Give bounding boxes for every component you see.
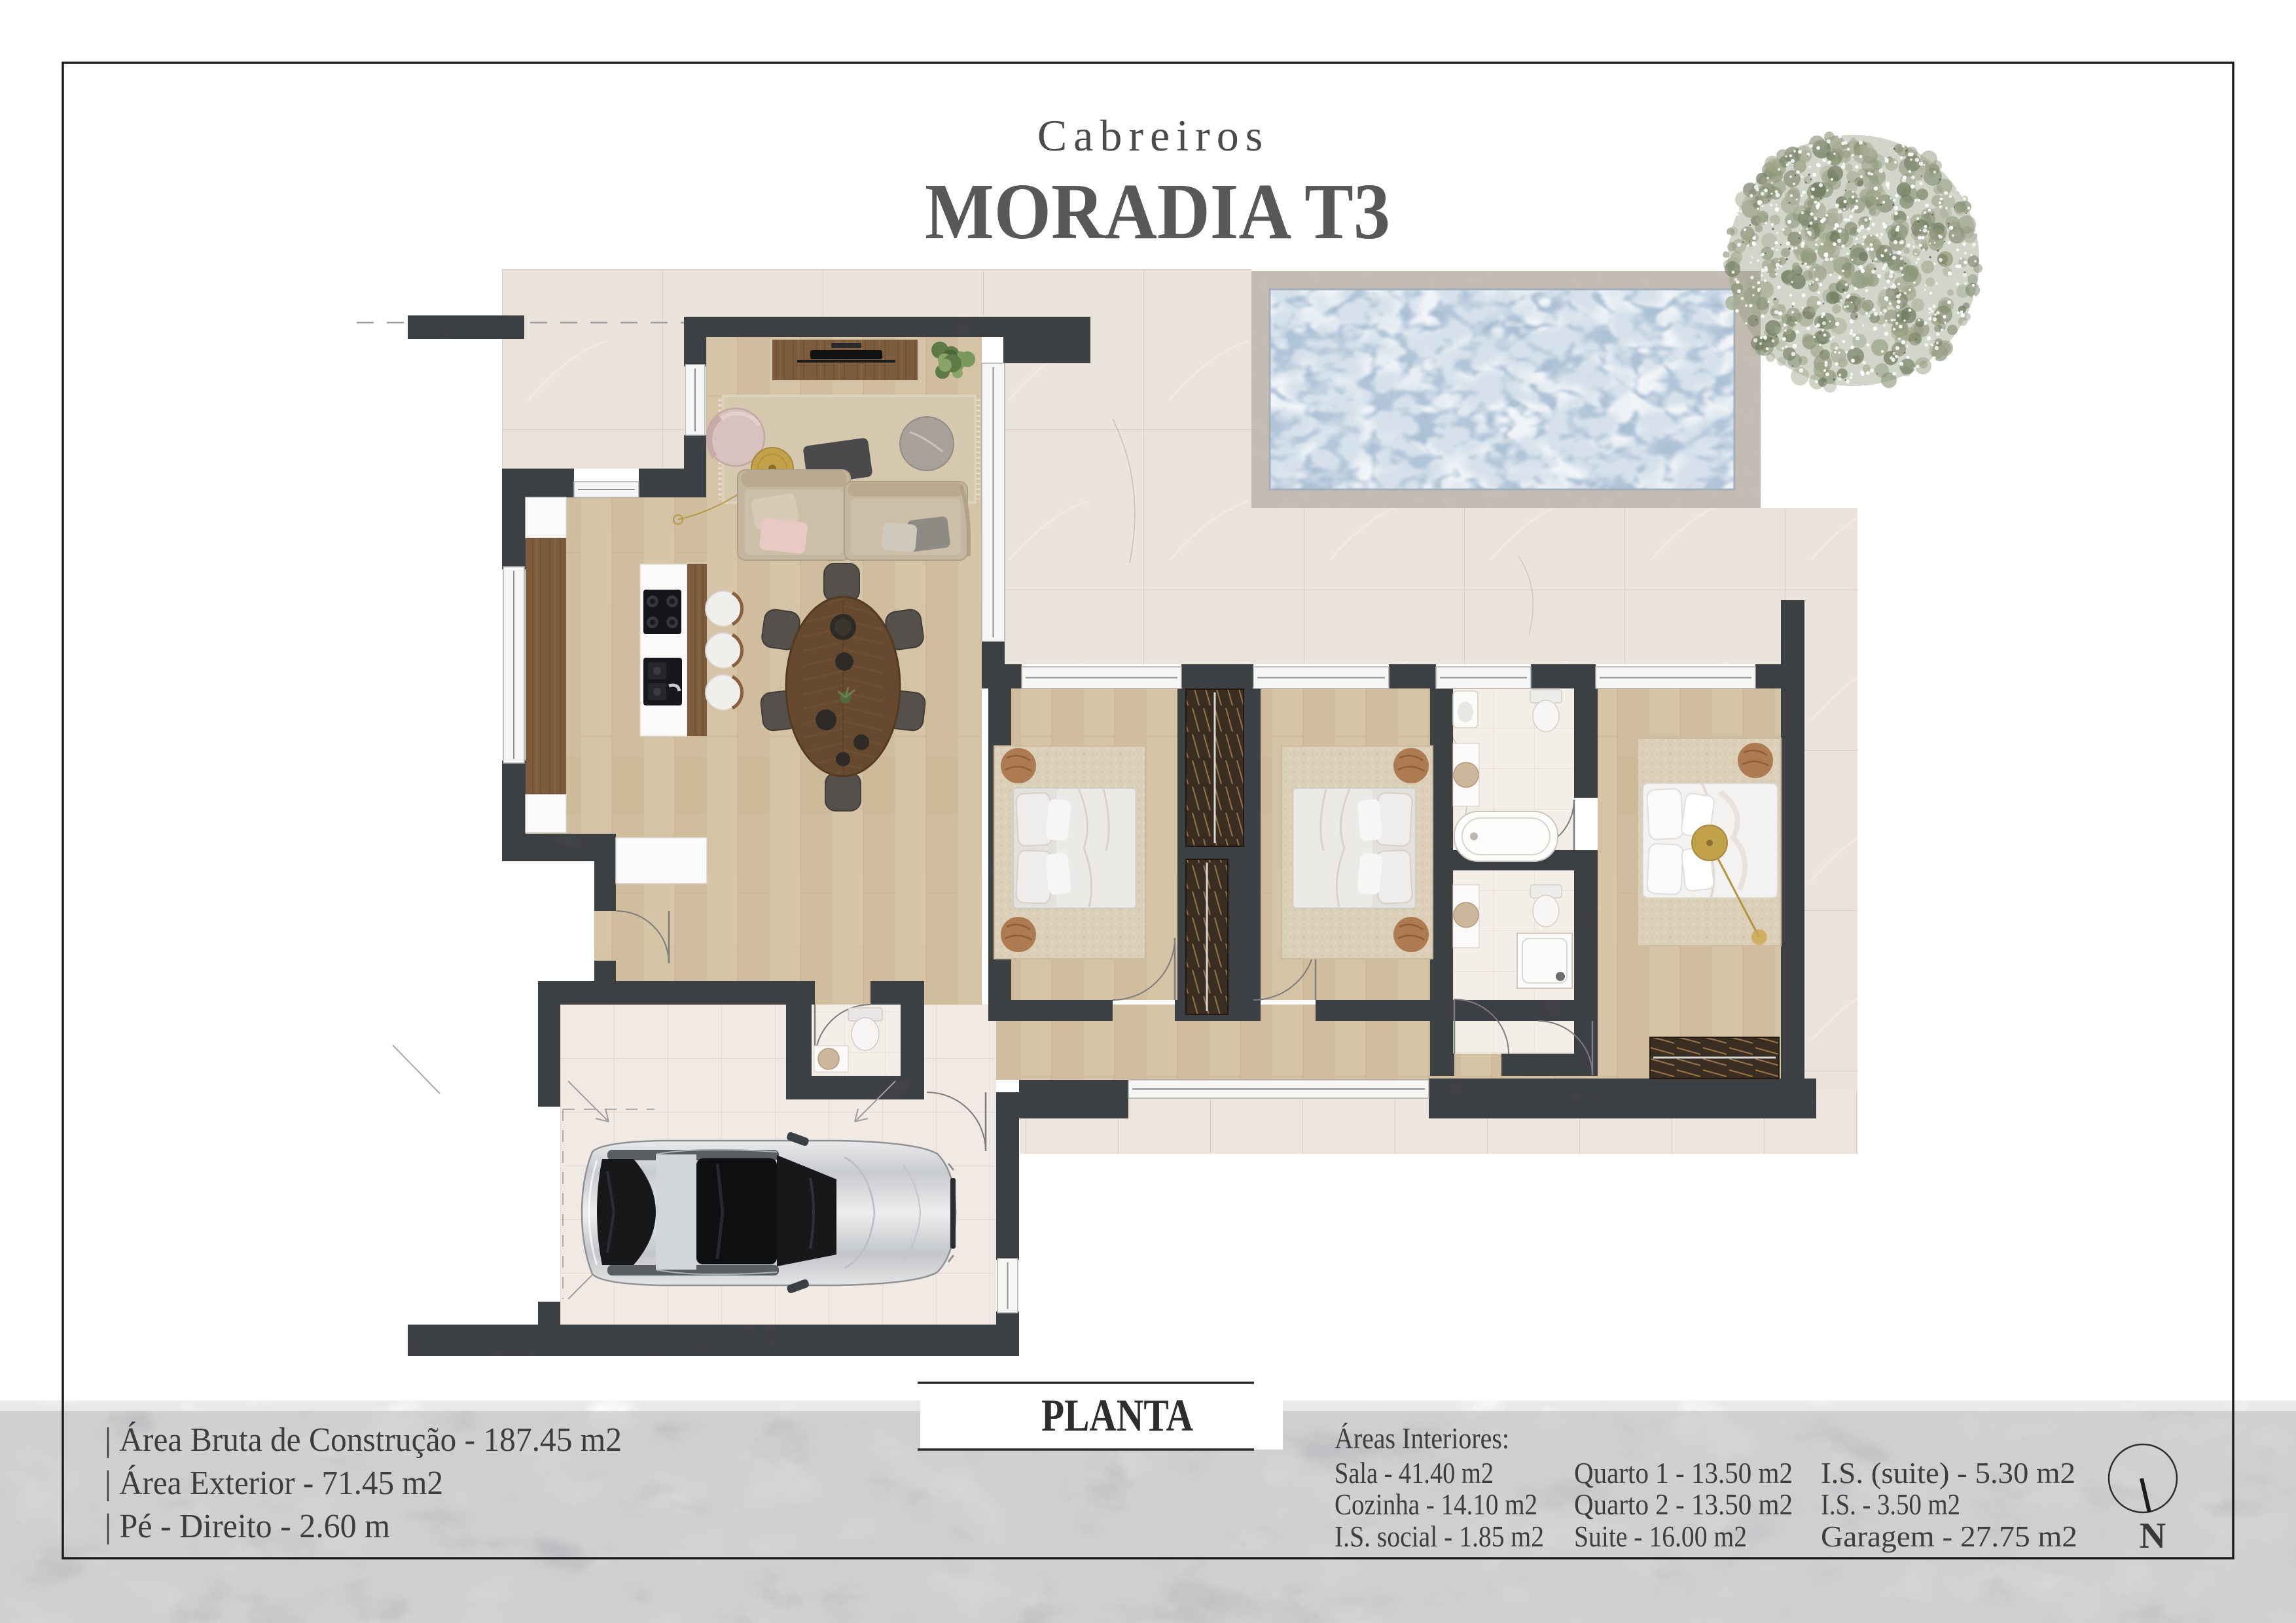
svg-text:PLANTA: PLANTA xyxy=(1041,1391,1193,1441)
svg-text:I.S. social - 1.85 m2: I.S. social - 1.85 m2 xyxy=(1335,1520,1544,1553)
svg-text:Sala - 41.40 m2: Sala - 41.40 m2 xyxy=(1335,1456,1494,1489)
svg-text:Cozinha - 14.10 m2: Cozinha - 14.10 m2 xyxy=(1335,1488,1537,1521)
svg-text:Áreas Interiores:: Áreas Interiores: xyxy=(1335,1421,1509,1455)
svg-text:I.S. (suite) - 5.30 m2: I.S. (suite) - 5.30 m2 xyxy=(1821,1456,2075,1489)
svg-text:| Área Exterior - 71.45 m2: | Área Exterior - 71.45 m2 xyxy=(105,1464,443,1502)
svg-text:MORADIA T3: MORADIA T3 xyxy=(925,168,1390,256)
svg-text:| Área Bruta de Construção - 1: | Área Bruta de Construção - 187.45 m2 xyxy=(105,1421,622,1459)
svg-text:Quarto 1 - 13.50 m2: Quarto 1 - 13.50 m2 xyxy=(1574,1456,1793,1489)
svg-text:N: N xyxy=(2140,1516,2166,1556)
svg-text:I.S. - 3.50 m2: I.S. - 3.50 m2 xyxy=(1821,1488,1960,1521)
svg-text:Suite - 16.00 m2: Suite - 16.00 m2 xyxy=(1574,1520,1747,1553)
svg-text:Garagem - 27.75 m2: Garagem - 27.75 m2 xyxy=(1821,1520,2077,1553)
svg-text:| Pé - Direito - 2.60 m: | Pé - Direito - 2.60 m xyxy=(105,1508,390,1545)
svg-text:Quarto 2 - 13.50 m2: Quarto 2 - 13.50 m2 xyxy=(1574,1488,1793,1521)
svg-text:Cabreiros: Cabreiros xyxy=(1037,111,1269,160)
